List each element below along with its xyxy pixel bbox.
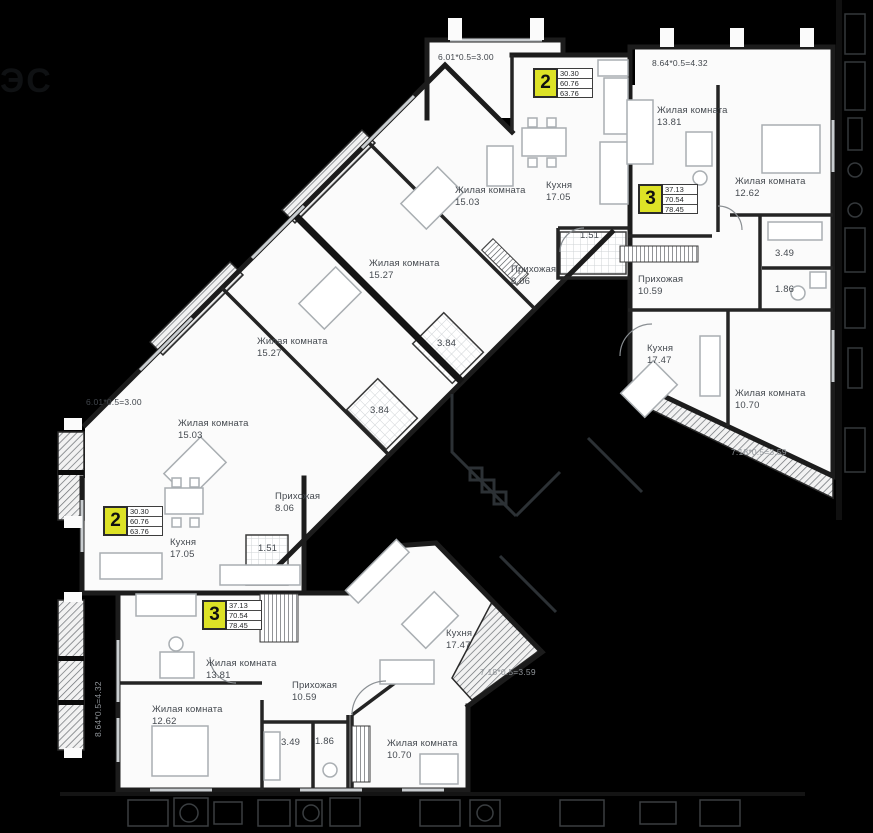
- room-name: Прихожая: [292, 680, 337, 691]
- room-area: 12.62: [735, 188, 806, 200]
- room-label-wc: 1.86: [775, 284, 794, 296]
- usable-area-value: 60.76: [558, 78, 592, 88]
- living-area-value: 30.30: [558, 69, 592, 78]
- room-name: Жилая комната: [152, 704, 223, 715]
- room-label-bathroom: 1.51: [258, 543, 277, 555]
- room-label-hallway: Прихожая 10.59: [638, 274, 683, 297]
- room-label-living: Жилая комната 12.62: [152, 704, 223, 727]
- room-label-hallway: Прихожая 8.06: [275, 491, 320, 514]
- dimension-label: 7.18*0.5=3.59: [480, 667, 536, 677]
- room-label-kitchen: Кухня 17.47: [647, 343, 673, 366]
- apartment-rooms-count: 2: [103, 506, 128, 536]
- room-area: 15.03: [455, 197, 526, 209]
- dimension-label: 6.01*0.5=3.00: [86, 397, 142, 407]
- room-label-living: Жилая комната 13.81: [206, 658, 277, 681]
- total-area-value: 63.76: [128, 526, 162, 536]
- room-area: 1.51: [580, 230, 599, 242]
- room-label-living: Жилая комната 15.27: [369, 258, 440, 281]
- room-name: Жилая комната: [735, 176, 806, 187]
- room-name: Жилая комната: [657, 105, 728, 116]
- room-label-living: Жилая комната 10.70: [387, 738, 458, 761]
- room-area: 8.06: [275, 503, 320, 515]
- dimension-label: 6.01*0.5=3.00: [438, 52, 494, 62]
- room-label-living: Жилая комната 10.70: [735, 388, 806, 411]
- room-label-living: Жилая комната 15.03: [178, 418, 249, 441]
- room-name: Жилая комната: [206, 658, 277, 669]
- usable-area-value: 70.54: [227, 610, 261, 620]
- room-area: 3.49: [281, 737, 300, 749]
- room-label-hallway: Прихожая 8.06: [511, 264, 556, 287]
- usable-area-value: 60.76: [128, 516, 162, 526]
- apartment-areas-table: 30.30 60.76 63.76: [558, 68, 593, 98]
- apartment-badge-2-left[interactable]: 2 30.30 60.76 63.76: [103, 506, 163, 536]
- room-name: Жилая комната: [735, 388, 806, 399]
- room-label-kitchen: Кухня 17.05: [546, 180, 572, 203]
- room-area: 10.70: [387, 750, 458, 762]
- developer-logo: ЭС: [0, 62, 53, 101]
- apartment-areas-table: 37.13 70.54 78.45: [663, 184, 698, 214]
- room-label-kitchen: Кухня 17.05: [170, 537, 196, 560]
- room-name: Жилая комната: [257, 336, 328, 347]
- apartment-rooms-count: 2: [533, 68, 558, 98]
- room-label-bathroom: 3.84: [437, 338, 456, 350]
- room-area: 10.59: [292, 692, 337, 704]
- room-area: 17.47: [647, 355, 673, 367]
- room-area: 3.49: [775, 248, 794, 260]
- living-area-value: 37.13: [227, 601, 261, 610]
- apartment-rooms-count: 3: [202, 600, 227, 630]
- room-name: Кухня: [170, 537, 196, 548]
- floor-plan: ЭС 6.01*0.5=3.00 8.64*0.5=4.32 7.18*0.5=…: [0, 0, 873, 833]
- apartment-badge-3-bottom[interactable]: 3 37.13 70.54 78.45: [202, 600, 262, 630]
- room-area: 17.05: [546, 192, 572, 204]
- room-area: 15.03: [178, 430, 249, 442]
- room-label-living: Жилая комната 12.62: [735, 176, 806, 199]
- room-area: 15.27: [257, 348, 328, 360]
- room-label-bathroom: 1.51: [580, 230, 599, 242]
- room-label-living: Жилая комната 15.27: [257, 336, 328, 359]
- room-area: 8.06: [511, 276, 556, 288]
- room-area: 3.84: [370, 405, 389, 417]
- apartment-areas-table: 30.30 60.76 63.76: [128, 506, 163, 536]
- room-area: 17.05: [170, 549, 196, 561]
- room-area: 15.27: [369, 270, 440, 282]
- usable-area-value: 70.54: [663, 194, 697, 204]
- room-name: Кухня: [446, 628, 472, 639]
- room-label-living: Жилая комната 13.81: [657, 105, 728, 128]
- room-name: Прихожая: [275, 491, 320, 502]
- floor-plan-drawing: [0, 0, 873, 833]
- total-area-value: 63.76: [558, 88, 592, 98]
- room-name: Прихожая: [511, 264, 556, 275]
- room-name: Жилая комната: [178, 418, 249, 429]
- room-area: 12.62: [152, 716, 223, 728]
- room-area: 1.51: [258, 543, 277, 555]
- room-area: 13.81: [206, 670, 277, 682]
- room-area: 3.84: [437, 338, 456, 350]
- room-name: Жилая комната: [455, 185, 526, 196]
- room-area: 10.59: [638, 286, 683, 298]
- room-area: 13.81: [657, 117, 728, 129]
- room-name: Прихожая: [638, 274, 683, 285]
- room-name: Жилая комната: [387, 738, 458, 749]
- apartment-badge-3-top[interactable]: 3 37.13 70.54 78.45: [638, 184, 698, 214]
- room-area: 1.86: [315, 736, 334, 748]
- room-area: 10.70: [735, 400, 806, 412]
- living-area-value: 30.30: [128, 507, 162, 516]
- room-name: Жилая комната: [369, 258, 440, 269]
- room-label-hallway: Прихожая 10.59: [292, 680, 337, 703]
- room-name: Кухня: [546, 180, 572, 191]
- apartment-rooms-count: 3: [638, 184, 663, 214]
- room-label-kitchen: Кухня 17.47: [446, 628, 472, 651]
- room-area: 1.86: [775, 284, 794, 296]
- dimension-label: 8.64*0.5=4.32: [652, 58, 708, 68]
- room-label-bathroom: 3.84: [370, 405, 389, 417]
- room-label-bathroom: 3.49: [281, 737, 300, 749]
- total-area-value: 78.45: [663, 204, 697, 214]
- room-label-wc: 1.86: [315, 736, 334, 748]
- living-area-value: 37.13: [663, 185, 697, 194]
- room-label-living: Жилая комната 15.03: [455, 185, 526, 208]
- apartment-areas-table: 37.13 70.54 78.45: [227, 600, 262, 630]
- dimension-label: 7.18*0.5=3.59: [731, 447, 787, 457]
- apartment-badge-2-top[interactable]: 2 30.30 60.76 63.76: [533, 68, 593, 98]
- room-label-bathroom: 3.49: [775, 248, 794, 260]
- room-area: 17.47: [446, 640, 472, 652]
- room-name: Кухня: [647, 343, 673, 354]
- dimension-label: 8.64*0.5=4.32: [93, 681, 103, 737]
- total-area-value: 78.45: [227, 620, 261, 630]
